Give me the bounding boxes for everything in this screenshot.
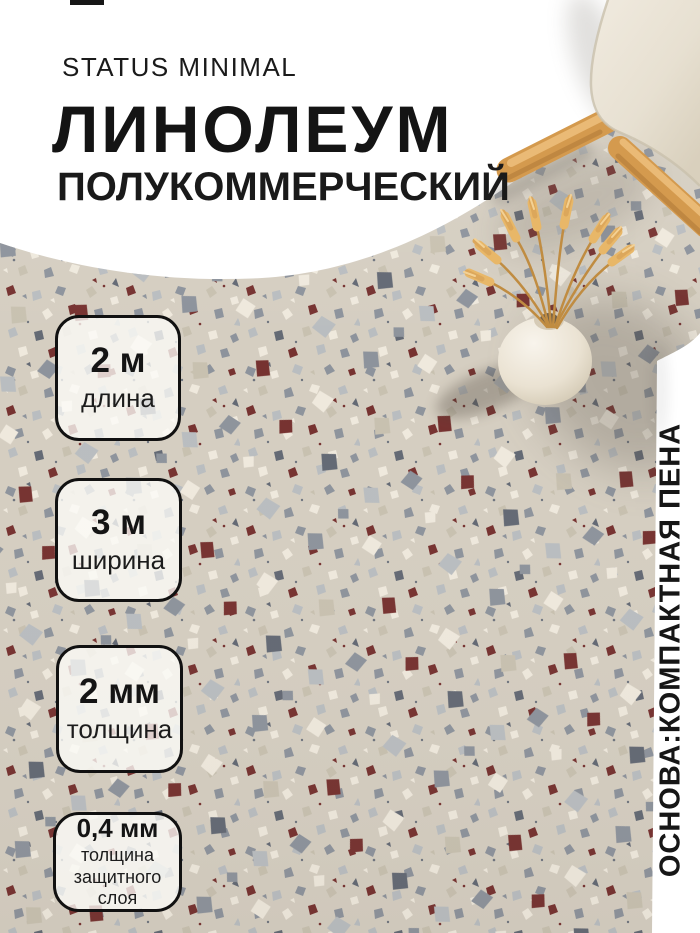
spec-badge-width: 3 м ширина bbox=[55, 478, 182, 602]
product-card: STATUS MINIMAL ЛИНОЛЕУМ ПОЛУКОММЕРЧЕСКИЙ… bbox=[0, 0, 700, 933]
spec-label: толщина bbox=[67, 715, 172, 744]
spec-badge-thickness: 2 мм толщина bbox=[56, 645, 183, 773]
product-title: ЛИНОЛЕУМ bbox=[52, 96, 453, 162]
spec-value: 2 м bbox=[90, 343, 145, 380]
cropped-top-mark bbox=[70, 0, 104, 5]
spec-value: 2 мм bbox=[79, 674, 160, 711]
product-subtitle: ПОЛУКОММЕРЧЕСКИЙ bbox=[57, 167, 510, 207]
spec-badge-protective-layer: 0,4 мм толщина защитного слоя bbox=[53, 812, 182, 912]
spec-label: длина bbox=[81, 384, 155, 413]
spec-label: ширина bbox=[72, 546, 165, 575]
spec-value: 0,4 мм bbox=[77, 815, 159, 842]
side-label-base: ОСНОВА:КОМПАКТНАЯ ПЕНА bbox=[655, 423, 688, 877]
brand-name: STATUS MINIMAL bbox=[62, 54, 297, 80]
spec-value: 3 м bbox=[91, 505, 146, 542]
spec-label: толщина защитного слоя bbox=[62, 845, 173, 909]
spec-badge-length: 2 м длина bbox=[55, 315, 181, 441]
